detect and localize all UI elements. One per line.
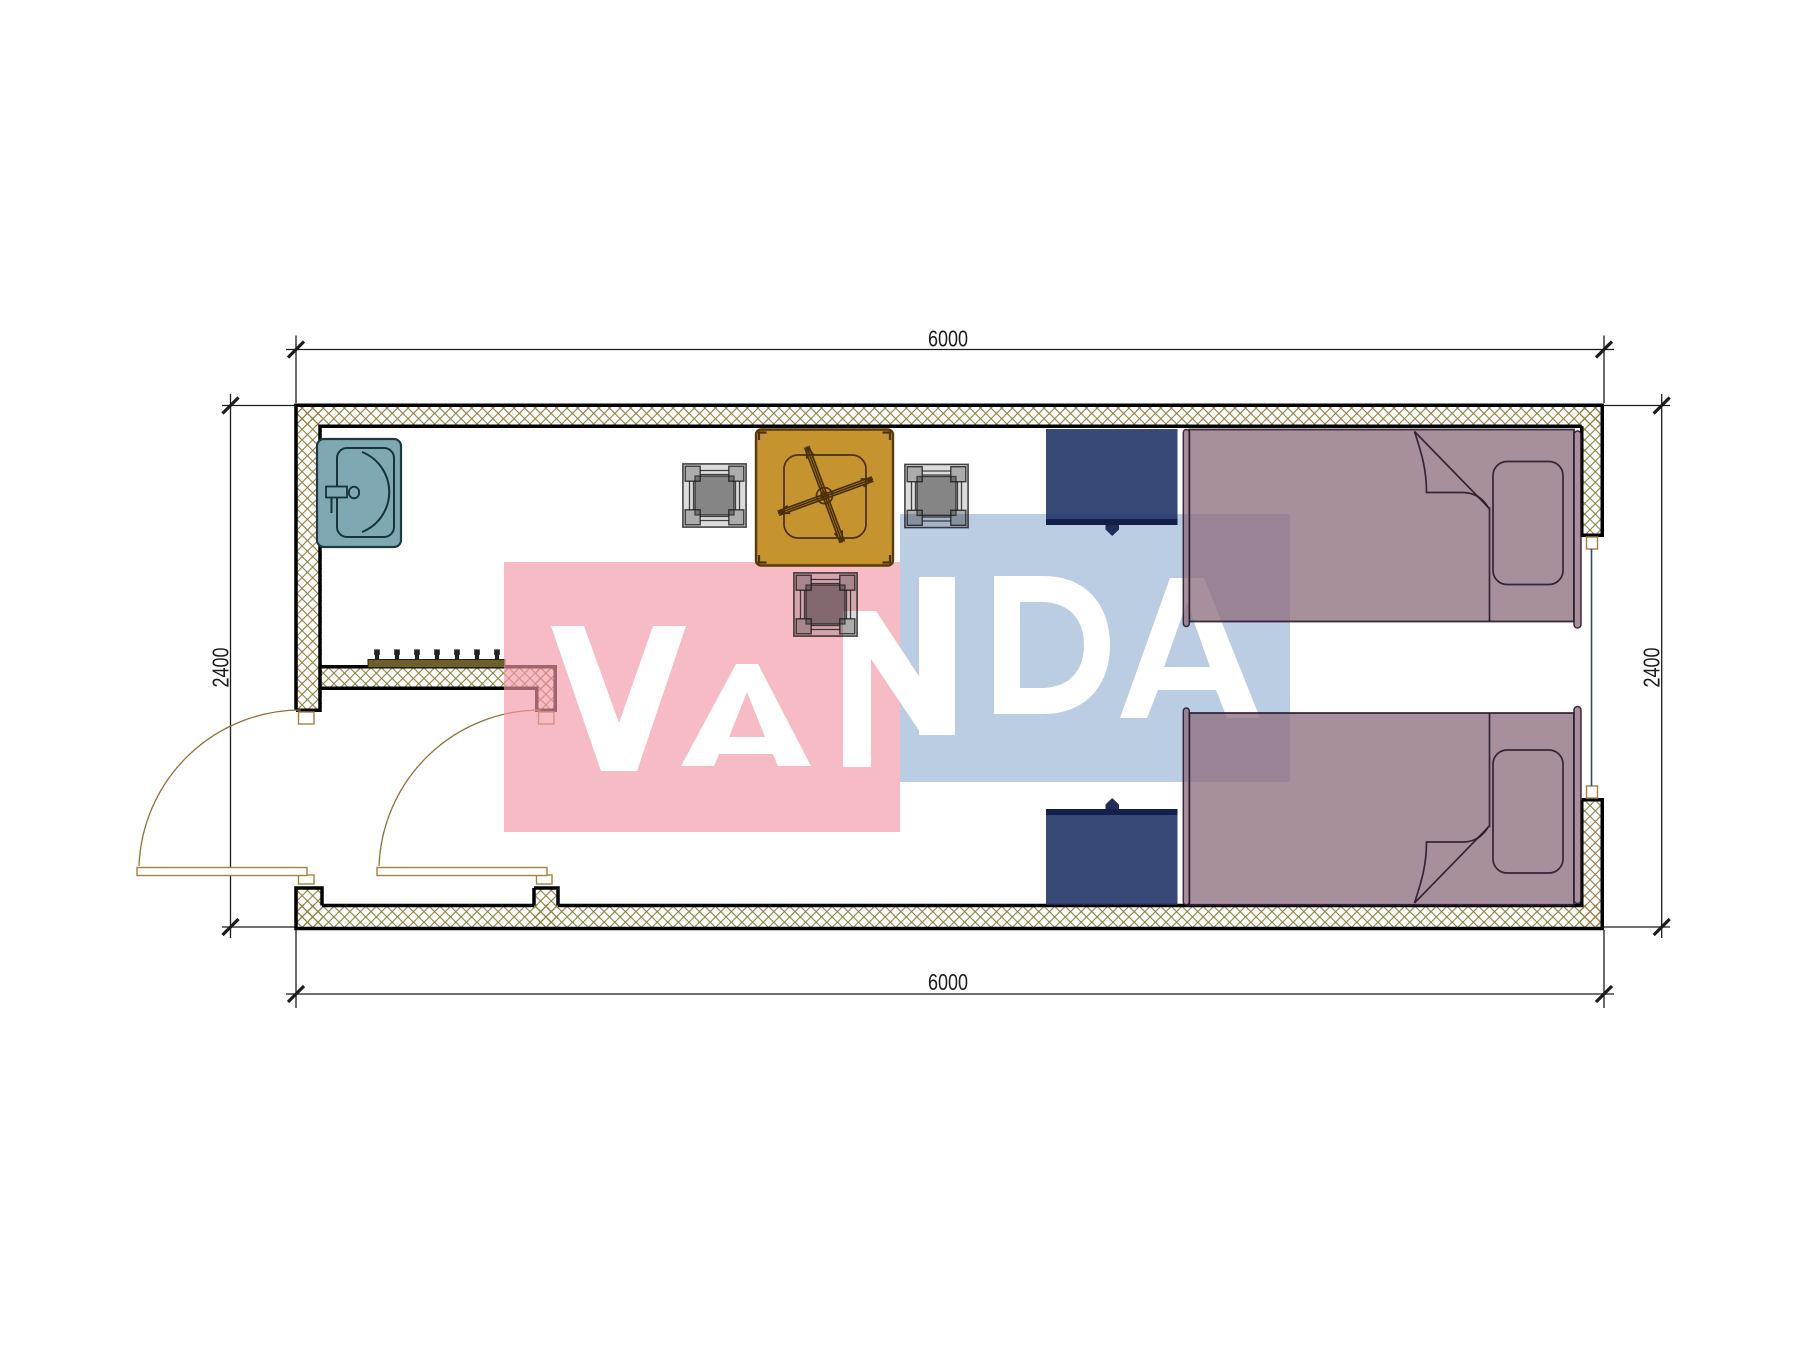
svg-text:2400: 2400 xyxy=(1639,648,1665,688)
svg-text:2400: 2400 xyxy=(208,648,234,688)
svg-text:6000: 6000 xyxy=(928,326,968,352)
svg-text:6000: 6000 xyxy=(928,969,968,995)
